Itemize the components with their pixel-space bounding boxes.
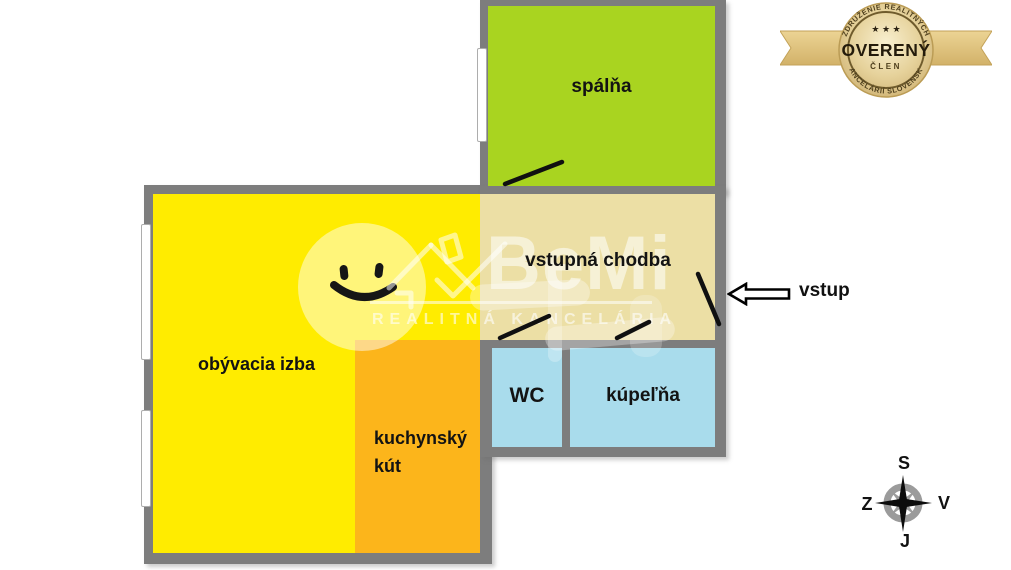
- verified-member-badge: ZDRUŽENIE REALITNÝCH KANCELÁRIÍ SLOVENSK…: [780, 1, 992, 101]
- compass-north-label: S: [898, 453, 910, 473]
- door-bathroom: [617, 322, 649, 338]
- door-bedroom: [505, 162, 562, 184]
- compass-rose: S J Z V: [855, 448, 955, 558]
- label-wc: WC: [492, 384, 562, 408]
- label-bathroom: kúpeľňa: [570, 385, 716, 407]
- floorplan-canvas: BeMi REALITNÁ KANCELÁRIA spálňa vstupná …: [0, 0, 1011, 570]
- badge-stars: ★ ★ ★: [871, 24, 900, 34]
- compass-south-label: J: [900, 531, 910, 551]
- compass-east-label: V: [938, 493, 950, 513]
- label-entrance: vstup: [799, 280, 850, 302]
- label-kitchen-line2: kút: [374, 452, 467, 480]
- entrance-arrow-icon: [727, 282, 793, 306]
- label-bedroom: spálňa: [488, 76, 715, 98]
- badge-subtitle: ČLEN: [870, 62, 902, 71]
- label-kitchen-line1: kuchynský: [374, 424, 467, 452]
- badge-title: OVERENÝ: [841, 39, 930, 60]
- compass-needle: [875, 475, 932, 532]
- label-living: obývacia izba: [198, 354, 315, 375]
- door-wc: [500, 316, 549, 338]
- label-hall: vstupná chodba: [480, 250, 716, 272]
- label-kitchen: kuchynský kút: [374, 424, 467, 480]
- compass-west-label: Z: [862, 494, 873, 514]
- door-entrance: [698, 274, 719, 324]
